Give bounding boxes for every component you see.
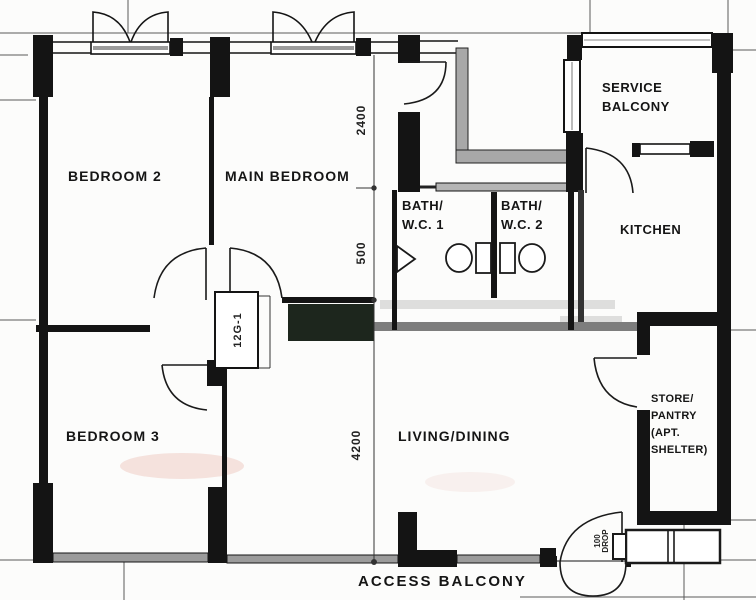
main-bedroom-label: MAIN BEDROOM bbox=[225, 167, 350, 186]
column-dim-bracket bbox=[258, 296, 270, 368]
kitchen-west-wall bbox=[578, 190, 584, 322]
wall-smudged-block bbox=[288, 304, 374, 341]
bath-lobby-door bbox=[402, 62, 446, 104]
wall-column bbox=[33, 483, 53, 563]
wall-column bbox=[33, 35, 53, 97]
store-north-wall bbox=[637, 312, 730, 326]
bedroom2-3-wall bbox=[36, 325, 150, 332]
bath1-label: BATH/ W.C. 1 bbox=[402, 196, 444, 234]
door-post bbox=[552, 556, 557, 567]
dimension-500: 500 bbox=[354, 241, 368, 264]
column-ref-label: 12G-1 bbox=[232, 312, 244, 348]
wall-column bbox=[398, 35, 420, 63]
bath2-label-line1: BATH/ bbox=[501, 196, 543, 215]
bath1-label-line1: BATH/ bbox=[402, 196, 444, 215]
casement-arc-icon bbox=[273, 12, 312, 42]
casement-arc-icon bbox=[93, 12, 130, 42]
store-label-line2: PANTRY bbox=[651, 408, 708, 425]
living-dining-label: LIVING/DINING bbox=[398, 427, 511, 446]
bath2-east-wall bbox=[568, 190, 574, 330]
store-pantry-label: STORE/ PANTRY (APT. SHELTER) bbox=[651, 391, 708, 459]
floor-plan: BEDROOM 2 MAIN BEDROOM BATH/ W.C. 1 BATH… bbox=[0, 0, 756, 600]
bedroom3-door bbox=[162, 365, 207, 410]
riser-cabinet bbox=[613, 530, 720, 563]
bedroom2-door bbox=[154, 248, 206, 300]
bedroom3-east-wall bbox=[222, 386, 227, 487]
service-balcony-label-line1: SERVICE bbox=[602, 78, 670, 97]
bath-living-wall bbox=[374, 322, 640, 331]
wall-column bbox=[170, 38, 183, 56]
store-label-line3: (APT. bbox=[651, 425, 708, 442]
bathroom-window-strip bbox=[398, 183, 571, 191]
wall-column bbox=[208, 487, 227, 563]
wall-post bbox=[690, 141, 714, 157]
store-west-wall bbox=[637, 410, 650, 525]
kitchen-window bbox=[640, 144, 690, 154]
wall-column bbox=[210, 37, 230, 97]
wall-column bbox=[356, 38, 371, 56]
entrance-drop-line2: DROP bbox=[602, 529, 610, 552]
wall-column bbox=[398, 112, 420, 192]
service-balcony-door bbox=[586, 148, 633, 193]
wall-column bbox=[567, 35, 582, 60]
entrance-drop-label: 100 DROP bbox=[594, 529, 610, 552]
access-balcony-label: ACCESS BALCONY bbox=[358, 572, 527, 591]
toilet-icon bbox=[446, 243, 491, 273]
store-south-wall bbox=[637, 511, 730, 525]
basin-icon bbox=[397, 246, 415, 272]
service-balcony-window bbox=[564, 60, 580, 132]
wall-column bbox=[398, 550, 457, 567]
toilet-icon bbox=[500, 243, 545, 273]
store-label-line1: STORE/ bbox=[651, 391, 708, 408]
dimension-4200: 4200 bbox=[349, 430, 363, 461]
living-balcony-window bbox=[457, 555, 540, 563]
bath1-label-line2: W.C. 1 bbox=[402, 215, 444, 234]
store-door bbox=[594, 358, 637, 407]
bath2-label-line2: W.C. 2 bbox=[501, 215, 543, 234]
bedroom-divider-wall bbox=[209, 97, 214, 245]
tiled-wall bbox=[456, 48, 468, 160]
wall-column bbox=[566, 133, 583, 192]
right-wall bbox=[717, 50, 731, 525]
service-balcony-railing bbox=[582, 33, 712, 47]
bedroom3-balcony-window bbox=[53, 553, 208, 562]
bath2-label: BATH/ W.C. 2 bbox=[501, 196, 543, 234]
wall-post bbox=[632, 143, 640, 157]
casement-arc-icon bbox=[131, 12, 168, 42]
tiled-wall bbox=[456, 150, 567, 163]
left-wall bbox=[39, 97, 48, 483]
main-bedroom-south-wall bbox=[282, 297, 374, 303]
bedroom3-label: BEDROOM 3 bbox=[66, 427, 160, 446]
casement-arc-icon bbox=[315, 12, 354, 42]
service-balcony-label-line2: BALCONY bbox=[602, 97, 670, 116]
store-label-line4: SHELTER) bbox=[651, 442, 708, 459]
kitchen-label: KITCHEN bbox=[620, 220, 681, 239]
service-balcony-label: SERVICE BALCONY bbox=[602, 78, 670, 116]
bedroom2-label: BEDROOM 2 bbox=[68, 167, 162, 186]
dimension-2400: 2400 bbox=[354, 105, 368, 136]
store-west-wall bbox=[637, 312, 650, 355]
